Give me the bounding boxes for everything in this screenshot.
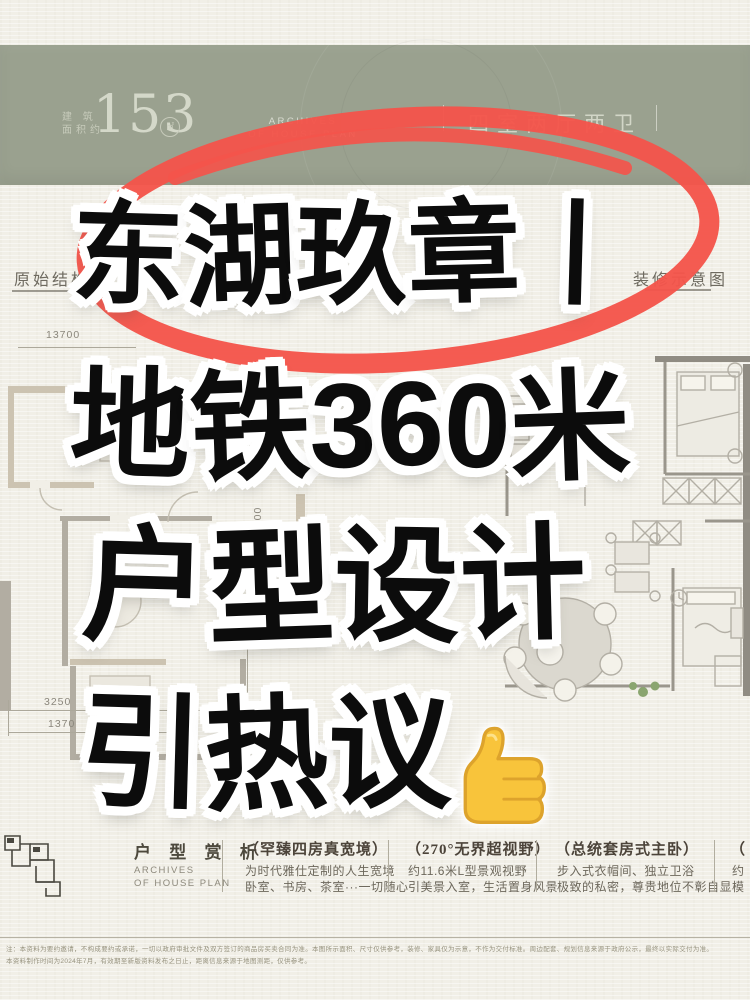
footer-divider-4 xyxy=(714,840,715,892)
band-divider-left xyxy=(443,105,444,131)
footer-col2-title: （270°无界超视野） xyxy=(406,838,551,859)
area-value: 153 xyxy=(93,89,198,141)
dimline-top xyxy=(18,347,136,348)
mini-floorplan-icon xyxy=(2,826,66,900)
disclaimer-line1: 注：本资料为要约邀请，不构成要约或承诺，一切以政府审批文件及双方签订的商品房买卖… xyxy=(6,946,746,954)
headline-line3: 户型设计 xyxy=(82,524,586,650)
band-divider-right xyxy=(656,105,657,131)
footer-col3-line1: 步入式衣帽间、独立卫浴 xyxy=(557,862,695,879)
layout-label: 四室两厅两卫 xyxy=(468,108,642,138)
poster-canvas: 建 筑 面积约 153 ㎡ ARCHIVES OF HOUSE PLAN 四室两… xyxy=(0,0,750,1000)
footer-rule xyxy=(0,937,750,938)
footer-col3-title: （总统套房式主卧） xyxy=(555,838,699,859)
footer-col4-title: （ xyxy=(730,838,746,859)
footer-divider-1 xyxy=(222,840,223,892)
footer-col3-line2: 极致的私密，尊贵地位不彰自显 xyxy=(557,878,732,895)
footer-col4-line1: 约 xyxy=(732,862,745,879)
headline-line2: 地铁360米 xyxy=(70,366,630,486)
dim-bottom-1: 3250 xyxy=(44,696,71,708)
right-plan-label: 装修示意图 xyxy=(633,266,728,290)
footer-col1-title: （罕臻四房真宽境） xyxy=(244,838,388,859)
right-plan-underline xyxy=(645,289,711,291)
headline-line4: 引热议 xyxy=(80,692,452,816)
dimline-bottom-tick xyxy=(8,700,9,736)
footer-col2-line1: 约11.6米L型景观视野 xyxy=(408,862,527,879)
footer-divider-2 xyxy=(388,840,389,892)
header-band: 建 筑 面积约 153 ㎡ ARCHIVES OF HOUSE PLAN 四室两… xyxy=(0,45,750,185)
archives-caption: ARCHIVES OF HOUSE PLAN xyxy=(248,115,358,141)
footer-sub-line2: OF HOUSE PLAN xyxy=(134,877,231,890)
thumbs-up-icon xyxy=(446,724,552,830)
footer-section-sub: ARCHIVES OF HOUSE PLAN xyxy=(134,864,231,890)
footer-col4-line2: 模 xyxy=(732,878,745,895)
footer-divider-3 xyxy=(536,840,537,892)
footer-col1-line1: 为时代雅仕定制的人生宽境 xyxy=(245,862,395,879)
dim-top: 13700 xyxy=(46,329,80,341)
dim-bottom-2: 1370 xyxy=(48,718,75,730)
area-unit-badge: ㎡ xyxy=(160,117,180,137)
disclaimer-line2: 本资料制作时间为2024年7月，有效期至新版资料发布之日止，距离信息来源于地图测… xyxy=(6,958,746,966)
footer-sub-line1: ARCHIVES xyxy=(134,864,231,877)
footer-col1-line2: 卧室、书房、茶室···一切随心 xyxy=(245,878,409,895)
archives-line2: OF HOUSE PLAN xyxy=(248,128,358,141)
archives-line1: ARCHIVES xyxy=(248,115,358,128)
headline-line1: 东湖玖章丨 xyxy=(72,200,632,312)
